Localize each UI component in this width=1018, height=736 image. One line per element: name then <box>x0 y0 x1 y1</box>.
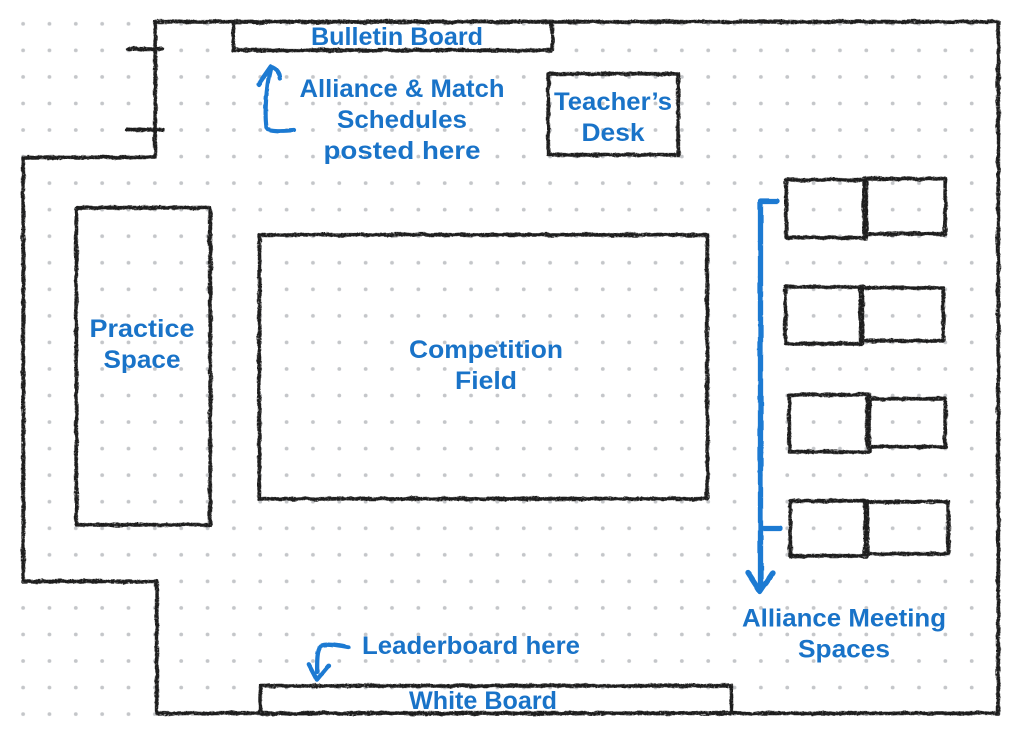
svg-text:Bulletin Board: Bulletin Board <box>311 23 483 51</box>
svg-text:White Board: White Board <box>409 687 557 715</box>
svg-text:Alliance & Match: Alliance & Match <box>300 75 505 103</box>
svg-text:Field: Field <box>455 367 517 395</box>
svg-text:Alliance Meeting: Alliance Meeting <box>742 605 946 633</box>
svg-text:posted here: posted here <box>324 137 481 165</box>
svg-text:Spaces: Spaces <box>798 636 890 664</box>
svg-text:Schedules: Schedules <box>337 106 467 134</box>
svg-text:Teacher’s: Teacher’s <box>554 88 672 116</box>
svg-text:Competition: Competition <box>409 336 563 364</box>
svg-text:Practice: Practice <box>90 315 195 343</box>
svg-text:Space: Space <box>104 346 181 374</box>
svg-text:Desk: Desk <box>582 119 645 147</box>
svg-text:Leaderboard here: Leaderboard here <box>362 632 580 660</box>
